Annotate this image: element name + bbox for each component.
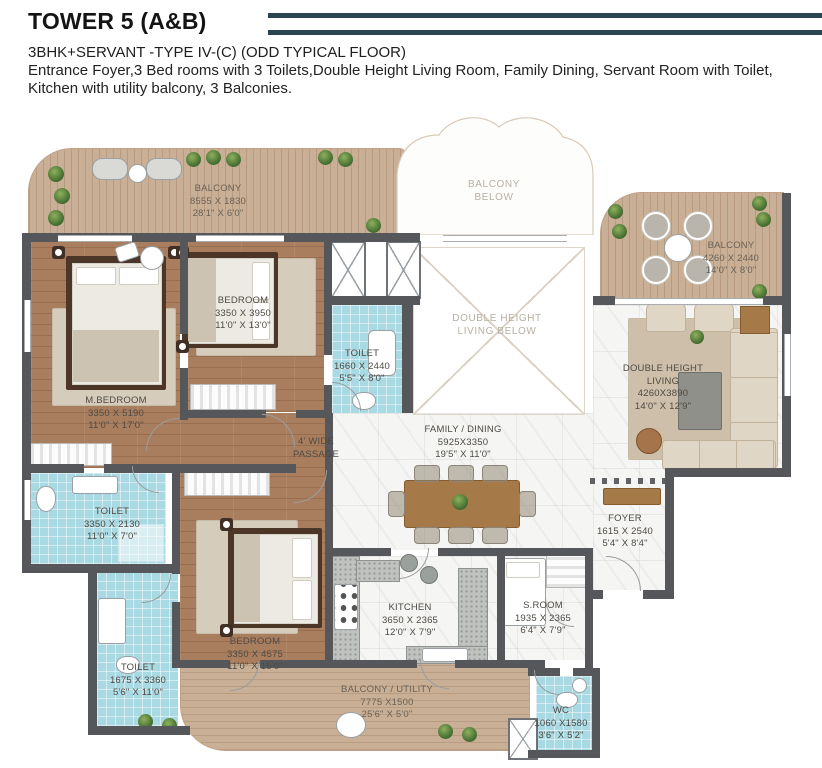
label-dh-living-below: DOUBLE HEIGHTLIVING BELOW xyxy=(452,312,541,338)
window xyxy=(784,334,791,396)
plant-icon xyxy=(48,166,64,182)
dining-chair-icon xyxy=(388,491,405,517)
vanity-icon xyxy=(98,598,126,644)
wall xyxy=(763,296,782,305)
stove-icon xyxy=(334,584,358,630)
wardrobe-icon xyxy=(190,384,276,410)
wall xyxy=(22,464,84,473)
plant-icon xyxy=(612,224,627,239)
armchair-icon xyxy=(694,302,734,332)
dining-chair-icon xyxy=(414,465,440,482)
wall xyxy=(333,548,391,556)
lounger-icon xyxy=(92,158,128,180)
window xyxy=(24,480,31,520)
round-table-icon xyxy=(664,234,692,262)
dining-chair-icon xyxy=(519,491,536,517)
wall xyxy=(324,385,332,413)
window xyxy=(24,300,31,352)
dining-chair-icon xyxy=(482,465,508,482)
window xyxy=(58,235,132,242)
wall xyxy=(505,548,593,556)
label-wc: WC1060 X15803'6" X 5'2" xyxy=(534,705,587,743)
wall xyxy=(585,590,603,599)
wall xyxy=(22,564,172,573)
cabinet-icon xyxy=(740,306,770,334)
plant-icon xyxy=(226,152,241,167)
bed-throw xyxy=(234,534,260,622)
wall xyxy=(324,296,420,305)
label-family-dining: FAMILY / DINING5925X335019'5" X 11'0" xyxy=(424,424,501,462)
plant-icon xyxy=(438,724,453,739)
wall xyxy=(88,726,190,735)
plan-description-line2: Kitchen with utility balcony, 3 Balconie… xyxy=(28,80,292,97)
centerpiece-plant-icon xyxy=(452,494,468,510)
floor-plan-sheet: TOWER 5 (A&B) 3BHK+SERVANT -TYPE IV-(C) … xyxy=(0,0,822,768)
label-passage: 4' WIDEPASSAGE xyxy=(293,436,339,461)
plant-icon xyxy=(54,188,70,204)
pillow xyxy=(292,538,312,578)
plant-icon xyxy=(462,727,477,742)
dotted-partition xyxy=(590,478,667,484)
dining-chair-icon xyxy=(482,527,508,544)
chair-icon xyxy=(642,256,670,284)
window xyxy=(443,235,567,242)
toilet-icon xyxy=(36,486,56,512)
wall xyxy=(402,305,413,413)
plant-icon xyxy=(690,330,704,344)
table-icon xyxy=(128,164,147,183)
dining-chair-icon xyxy=(448,465,474,482)
plant-icon xyxy=(318,150,333,165)
lift-shaft-icon xyxy=(330,241,366,299)
wall xyxy=(325,660,417,668)
label-foyer: FOYER1615 X 25405'4" X 8'4" xyxy=(597,513,653,551)
accent-bar-top xyxy=(268,13,822,18)
kitchen-island xyxy=(356,560,400,582)
stool-icon xyxy=(420,566,438,584)
label-balcony-utility: BALCONY / UTILITY7775 X150025'6" X 5'0" xyxy=(341,684,433,722)
wall xyxy=(325,548,333,668)
label-m-bedroom: M.BEDROOM3350 X 519011'0" X 17'0" xyxy=(85,395,146,433)
wall xyxy=(455,660,498,668)
label-balcony-below: BALCONYBELOW xyxy=(468,178,520,204)
wall xyxy=(665,468,674,599)
side-table-icon xyxy=(636,428,662,454)
wardrobe-icon xyxy=(30,443,112,466)
chair-icon xyxy=(642,212,670,240)
armchair-icon xyxy=(646,302,686,332)
vanity-icon xyxy=(72,476,118,494)
label-balcony-right: BALCONY4260 X 244014'0" X 8'0" xyxy=(703,240,759,278)
plant-icon xyxy=(206,150,221,165)
wall xyxy=(573,668,593,676)
wall xyxy=(180,368,188,420)
bed-throw xyxy=(188,258,216,342)
wall xyxy=(497,548,505,668)
wall xyxy=(22,233,31,573)
wardrobe-icon xyxy=(184,472,270,496)
toilet-bottom-floor xyxy=(97,572,178,727)
window xyxy=(196,235,284,242)
bedpost-icon xyxy=(176,340,189,353)
label-bedroom-bottom: BEDROOM3350 X 457511'0" X 15'0" xyxy=(227,636,283,674)
accent-bar-bottom xyxy=(268,30,822,35)
wall xyxy=(172,602,180,668)
wall xyxy=(188,410,266,418)
label-toilet-left: TOILET3350 X 213011'0" X 7'0" xyxy=(84,506,140,544)
plant-icon xyxy=(608,204,623,219)
label-dh-living: DOUBLE HEIGHTLIVING 4260X389014'0" X 12'… xyxy=(623,363,703,413)
stairs-icon xyxy=(546,552,586,588)
wall xyxy=(325,413,333,556)
wall xyxy=(88,564,97,735)
label-toilet-bottom: TOILET1675 X 33605'6" X 11'0" xyxy=(110,662,166,700)
wall xyxy=(592,668,600,758)
label-balcony-top: BALCONY8555 X 183028'1" X 6'0" xyxy=(190,183,246,221)
lounger-icon xyxy=(146,158,182,180)
wall xyxy=(180,660,230,668)
lift-shaft-icon xyxy=(386,241,421,299)
pillow xyxy=(292,580,312,620)
wall xyxy=(324,233,332,355)
label-bedroom-top: BEDROOM3350 X 395011'0" X 13'0" xyxy=(215,295,271,333)
plan-description-line1: Entrance Foyer,3 Bed rooms with 3 Toilet… xyxy=(28,62,773,79)
wall xyxy=(438,548,500,556)
wall xyxy=(497,660,545,668)
label-s-room: S.ROOM1935 X 23656'4" X 7'9" xyxy=(515,600,571,638)
bedpost-icon xyxy=(220,518,233,531)
plan-subtitle: 3BHK+SERVANT -TYPE IV-(C) (ODD TYPICAL F… xyxy=(28,44,406,61)
plant-icon xyxy=(366,218,381,233)
console-table-icon xyxy=(603,488,661,505)
wall xyxy=(665,468,791,477)
chair-icon xyxy=(140,246,164,270)
sink-icon xyxy=(572,678,587,693)
plant-icon xyxy=(186,152,201,167)
label-kitchen: KITCHEN3650 X 236512'0" X 7'9" xyxy=(382,602,438,640)
label-toilet-mid: TOILET1660 X 24405'5" X 8'0" xyxy=(334,348,390,386)
plant-icon xyxy=(752,196,767,211)
sofa-icon xyxy=(662,440,776,470)
balcony-below-outline xyxy=(395,113,595,235)
wall xyxy=(593,296,615,305)
sliding-door xyxy=(615,298,763,305)
plant-icon xyxy=(338,152,353,167)
wall xyxy=(180,242,188,334)
page-title: TOWER 5 (A&B) xyxy=(28,8,207,35)
wall xyxy=(528,750,600,758)
plant-icon xyxy=(48,210,64,226)
dining-chair-icon xyxy=(414,527,440,544)
dining-chair-icon xyxy=(448,527,474,544)
wall xyxy=(585,548,593,672)
pillow xyxy=(76,267,116,285)
plant-icon xyxy=(756,212,771,227)
pillow xyxy=(506,562,540,578)
nightstand-icon xyxy=(52,246,65,259)
chair-icon xyxy=(684,212,712,240)
bed-throw xyxy=(73,330,159,382)
wall xyxy=(172,464,180,574)
